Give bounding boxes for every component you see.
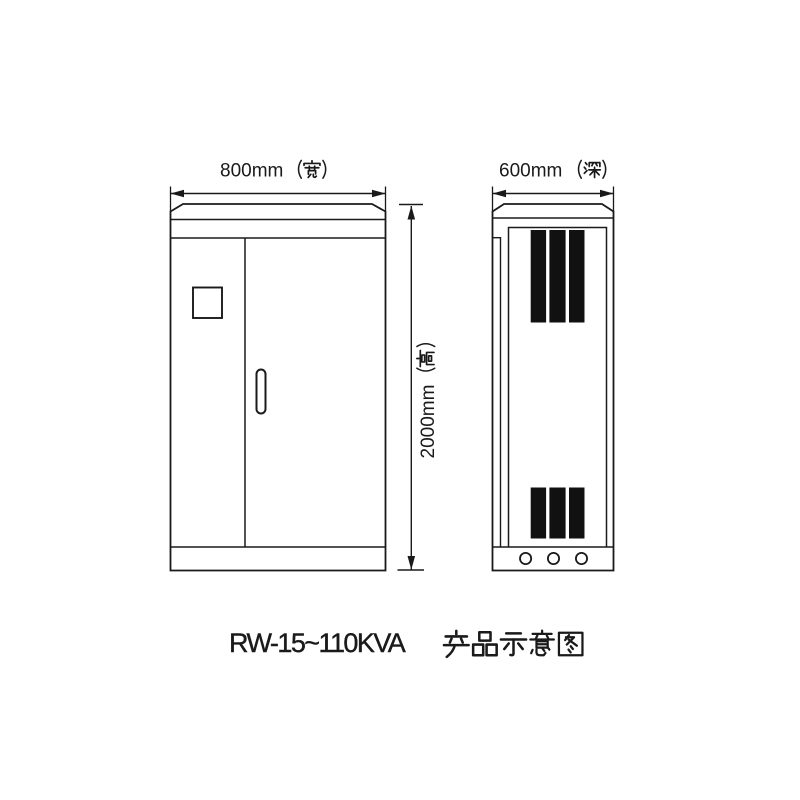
svg-text:800mm: 800mm	[220, 161, 283, 182]
svg-text:2000mm: 2000mm	[418, 385, 439, 459]
svg-text:600mm: 600mm	[499, 161, 562, 182]
svg-text:RW-15~110KVA: RW-15~110KVA	[229, 628, 406, 658]
